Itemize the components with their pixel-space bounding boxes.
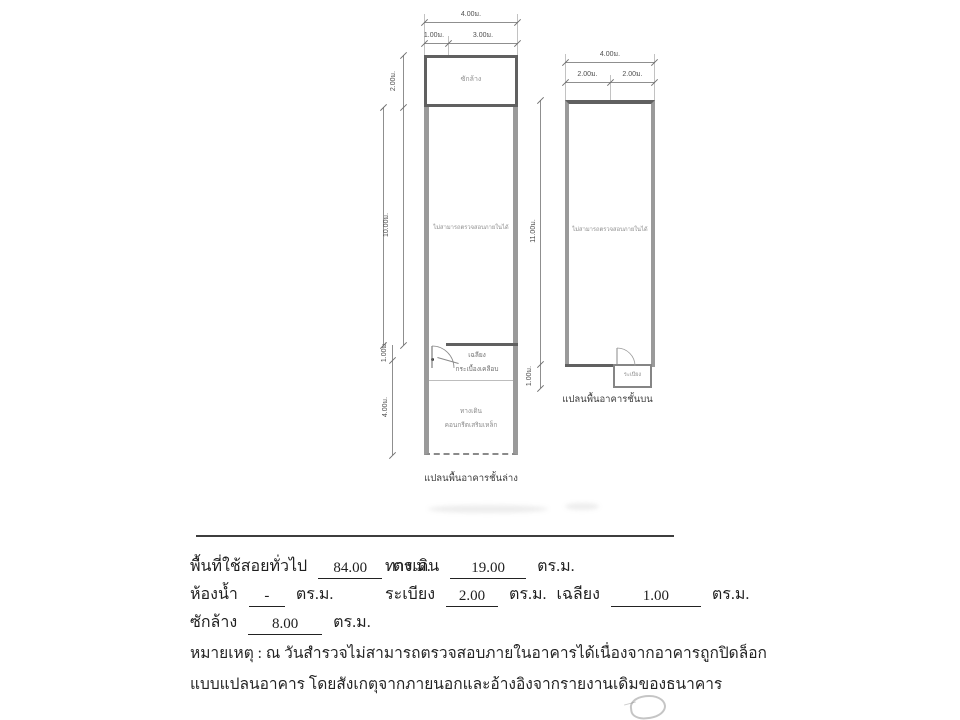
summary-washing-label: ซักล้าง bbox=[190, 614, 237, 631]
dim-label-porch-height: 1.00ม. bbox=[381, 334, 391, 370]
washing-room-label: ซักล้าง bbox=[429, 74, 513, 85]
porch-material-label: กระเบื้องเคลือบ bbox=[441, 364, 513, 374]
dimension-line bbox=[565, 62, 655, 63]
dim-label-main-height: 10.00ม. bbox=[383, 205, 393, 245]
dimension-line bbox=[424, 43, 518, 44]
unit-label: ตร.ม. bbox=[537, 558, 575, 575]
dim-label-width-right: 2.00ม. bbox=[610, 71, 655, 79]
signature-scribble bbox=[629, 693, 668, 720]
main-room-note: ไม่สามารถตรวจสอบภายในได้ bbox=[429, 222, 513, 232]
summary-row-3: ซักล้าง 8.00 ตร.ม. bbox=[0, 610, 960, 636]
upper-bottom-wall bbox=[565, 364, 615, 367]
dimension-line bbox=[424, 22, 518, 23]
dim-label-balcony-height: 1.00ม. bbox=[526, 358, 536, 394]
scanned-floor-plan-page: 4.00ม. 1.00ม. 3.00ม. ซักล้าง ไม่สามารถตร… bbox=[0, 0, 960, 720]
main-body-outline bbox=[424, 107, 518, 455]
dim-tick bbox=[537, 385, 544, 392]
separator-line bbox=[196, 535, 674, 537]
summary-bathroom-label: ห้องน้ำ bbox=[190, 586, 238, 603]
dim-label-total-width: 4.00ม. bbox=[424, 11, 518, 19]
summary-row-1: พื้นที่ใช้สอยทั่วไป 84.00 ตร.ม. ทางเดิน … bbox=[0, 554, 960, 580]
summary-general-value: 84.00 bbox=[318, 559, 382, 579]
dimension-line bbox=[540, 100, 541, 388]
walkway-label: ทางเดิน bbox=[429, 406, 513, 416]
summary-general-label: พื้นที่ใช้สอยทั่วไป bbox=[190, 558, 307, 575]
summary-washing-value: 8.00 bbox=[248, 615, 322, 635]
dim-label-width-right: 3.00ม. bbox=[448, 32, 518, 40]
walkway-material-label: คอนกรีตเสริมเหล็ก bbox=[429, 420, 513, 430]
upper-plan-caption: แปลนพื้นอาคารชั้นบน bbox=[555, 394, 660, 405]
summary-balcony-value: 2.00 bbox=[446, 587, 498, 607]
summary-porch-value: 1.00 bbox=[611, 587, 701, 607]
note-line-2: แบบแปลนอาคาร โดยสังเกตุจากภายนอกและอ้างอ… bbox=[190, 671, 722, 696]
dim-label-walkway-height: 4.00ม. bbox=[382, 389, 392, 425]
balcony-label: ระเบียง bbox=[615, 371, 650, 379]
porch-label: เฉลียง bbox=[447, 350, 507, 360]
scan-smudge bbox=[428, 505, 548, 513]
summary-porch-label: เฉลียง bbox=[557, 586, 600, 603]
lower-plan-caption: แปลนพื้นอาคารชั้นล่าง bbox=[420, 473, 522, 484]
door-swing-arc bbox=[615, 346, 637, 368]
note-line-1: หมายเหตุ : ณ วันสำรวจไม่สามารถตรวจสอบภาย… bbox=[190, 640, 767, 665]
dim-label-washing-height: 2.00ม. bbox=[390, 63, 400, 99]
dimension-line bbox=[403, 55, 404, 345]
dim-label-total-width: 4.00ม. bbox=[565, 51, 655, 59]
scan-smudge bbox=[565, 503, 599, 510]
unit-label: ตร.ม. bbox=[296, 586, 334, 603]
summary-row-2: ห้องน้ำ - ตร.ม. ระเบียง 2.00 ตร.ม. เฉลีย… bbox=[0, 582, 960, 608]
unit-label: ตร.ม. bbox=[333, 614, 371, 631]
summary-bathroom-value: - bbox=[249, 587, 285, 607]
upper-main-room-note: ไม่สามารถตรวจสอบภายในได้ bbox=[569, 224, 651, 234]
main-bottom-wall bbox=[446, 343, 518, 346]
dim-label-upper-main-height: 11.00ม. bbox=[530, 211, 540, 251]
summary-balcony-label: ระเบียง bbox=[385, 586, 435, 603]
walkway-divider-line bbox=[429, 380, 513, 381]
dim-tick bbox=[389, 452, 396, 459]
dim-tick bbox=[400, 342, 407, 349]
summary-walkway-label: ทางเดิน bbox=[385, 558, 439, 575]
dim-label-width-left: 2.00ม. bbox=[565, 71, 610, 79]
unit-label: ตร.ม. bbox=[712, 586, 750, 603]
unit-label: ตร.ม. bbox=[509, 586, 547, 603]
summary-walkway-value: 19.00 bbox=[450, 559, 526, 579]
